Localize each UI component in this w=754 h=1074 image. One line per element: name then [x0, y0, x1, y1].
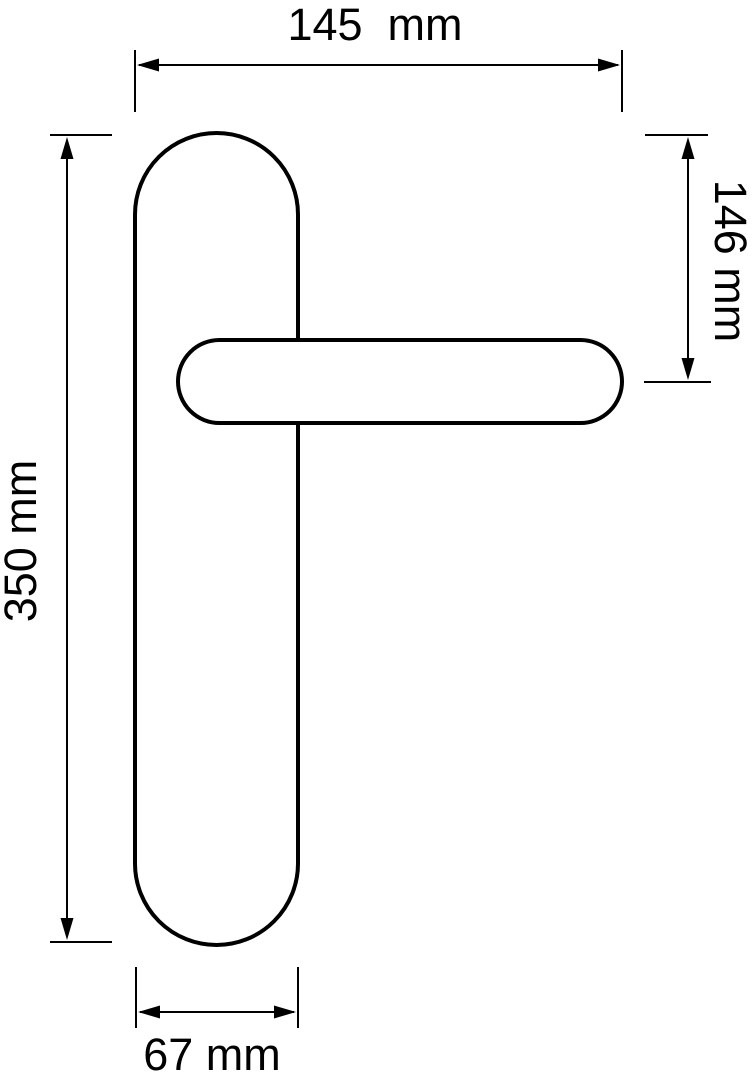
- arrowhead-left-icon: [138, 1006, 160, 1019]
- arrowhead-up-icon: [61, 137, 74, 159]
- dim-label-total-width: 145 mm: [287, 0, 462, 50]
- arrowhead-right-icon: [274, 1006, 296, 1019]
- technical-drawing: 145 mm 146 mm 350 mm 67 mm: [0, 0, 754, 1074]
- dim-total-height: 350 mm: [0, 135, 112, 942]
- dim-backplate-width: 67 mm: [136, 967, 298, 1074]
- dim-label-backplate-width: 67 mm: [143, 1029, 281, 1074]
- arrowhead-down-icon: [61, 918, 74, 940]
- dim-label-total-height: 350 mm: [0, 460, 46, 623]
- dim-label-handle-axis: 146 mm: [705, 180, 754, 343]
- lever-handle-outline: [178, 340, 622, 423]
- arrowhead-up-icon: [682, 137, 695, 159]
- dim-handle-axis-from-top: 146 mm: [644, 135, 754, 382]
- drawing-svg: 145 mm 146 mm 350 mm 67 mm: [0, 0, 754, 1074]
- arrowhead-right-icon: [598, 59, 620, 72]
- arrowhead-left-icon: [137, 59, 159, 72]
- handle-assembly: [135, 133, 622, 945]
- arrowhead-down-icon: [682, 358, 695, 380]
- dim-total-width: 145 mm: [135, 0, 622, 112]
- backplate-outline: [135, 133, 298, 945]
